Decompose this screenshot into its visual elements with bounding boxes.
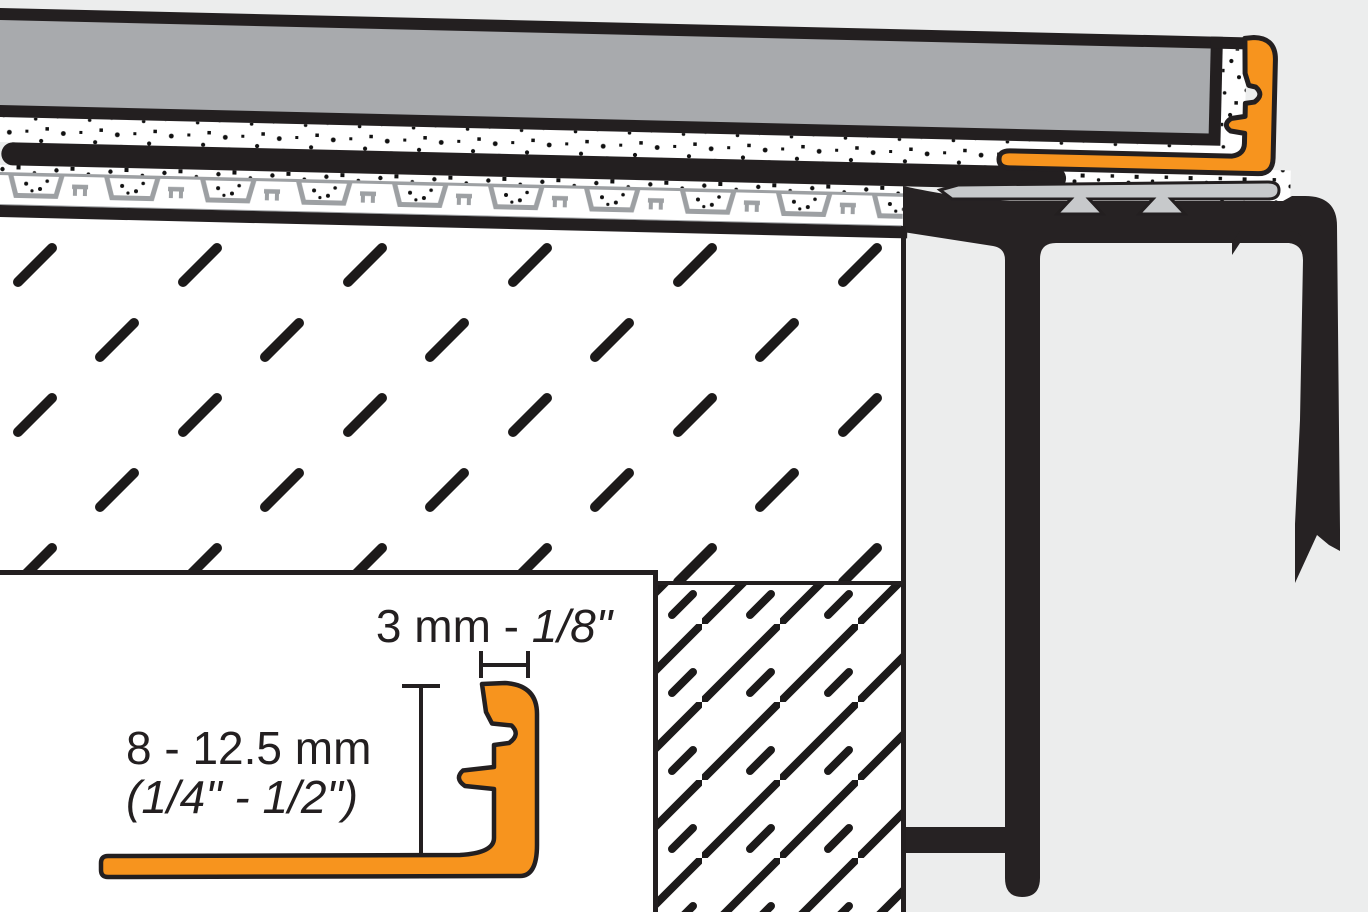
inset-detail-box: 3 mm - 1/8" 8 - 12.5 mm (1/4" - 1/2") (0, 572, 657, 912)
diagram-canvas: 3 mm - 1/8" 8 - 12.5 mm (1/4" - 1/2") (0, 0, 1368, 912)
height-dimension-label-metric: 8 - 12.5 mm (126, 722, 371, 774)
wall-bracket-bar (903, 827, 1009, 853)
width-dimension-label: 3 mm - 1/8" (376, 600, 615, 652)
height-dimension-label-imperial: (1/4" - 1/2") (126, 771, 358, 823)
screed-hatch (0, 214, 903, 583)
concrete-hatch (657, 583, 903, 912)
profile-cross-section-diagram: 3 mm - 1/8" 8 - 12.5 mm (1/4" - 1/2") (0, 0, 1368, 912)
